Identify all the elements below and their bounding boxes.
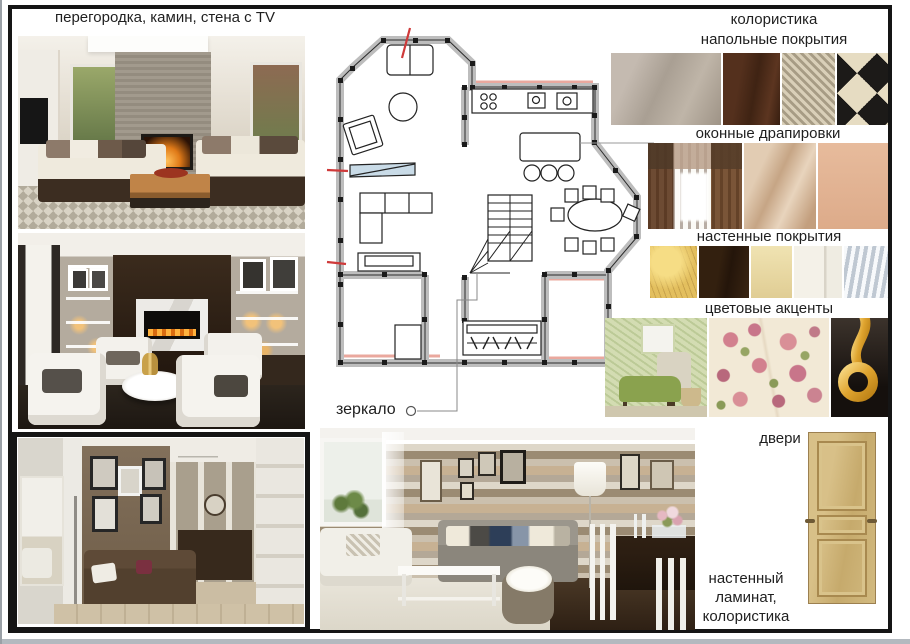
pillow-dark-right bbox=[214, 375, 248, 397]
page-title: перегородка, камин, стена с TV bbox=[30, 9, 300, 27]
plan-round-table bbox=[389, 93, 417, 121]
plan-island bbox=[520, 133, 580, 161]
flowers-vase bbox=[652, 506, 686, 538]
gold-vases bbox=[142, 353, 158, 375]
sofa-pillow-white bbox=[91, 562, 117, 583]
swatch-white-door-panel bbox=[794, 246, 842, 298]
gallery-frame-2 bbox=[458, 458, 474, 478]
door-handle-left bbox=[805, 519, 815, 523]
table-legs bbox=[402, 574, 496, 606]
swatch-peach-paint bbox=[818, 143, 888, 229]
gallery-frame-1 bbox=[420, 460, 442, 502]
curtains-label: оконные драпировки bbox=[648, 125, 888, 143]
swatch-rose-floral-fabric bbox=[709, 318, 829, 417]
mirror-callout-circle bbox=[407, 407, 416, 416]
photo-frame-bottom-left bbox=[12, 432, 310, 632]
sofa-pillow-red bbox=[136, 560, 152, 574]
green-chaise bbox=[619, 376, 681, 402]
swatch-light-taupe-wood bbox=[611, 53, 721, 125]
fireplace-flames bbox=[148, 329, 196, 336]
moodboard-page: перегородка, камин, стена с TV bbox=[0, 0, 910, 644]
door-top-panel bbox=[817, 441, 867, 511]
sofa-left-pillows bbox=[46, 140, 146, 158]
framed-art-2 bbox=[118, 466, 142, 496]
pillow-dark-left bbox=[42, 369, 82, 393]
photo-living-room-fireplace-tv bbox=[18, 36, 305, 229]
pic-right-a bbox=[240, 259, 266, 291]
fur-throw bbox=[506, 566, 552, 592]
photo-living-room-plank-wall-dining bbox=[320, 428, 695, 630]
pic-right-b bbox=[270, 257, 298, 291]
framed-art-1 bbox=[90, 456, 118, 490]
laminate-caption-3: колористика bbox=[690, 608, 802, 626]
door-image bbox=[808, 432, 876, 604]
coffee-table bbox=[130, 174, 210, 208]
swatch-shimmer-plaster bbox=[744, 143, 816, 229]
wall-coverings-label: настенные покрытия bbox=[650, 228, 888, 246]
swatch-checkerboard-tile bbox=[837, 53, 888, 125]
gold-pendant-shape bbox=[831, 318, 888, 417]
color-accents-label: цветовые акценты bbox=[650, 300, 888, 318]
swatch-woven-sisal bbox=[782, 53, 835, 125]
decor-bowl bbox=[154, 168, 188, 178]
pic-left-b bbox=[90, 269, 107, 290]
window-plant bbox=[328, 490, 372, 524]
photo-living-room-brown-wall-mirror bbox=[18, 438, 304, 624]
flooring-label-2: напольные покрытия bbox=[660, 31, 888, 49]
gallery-frame-3 bbox=[478, 452, 496, 476]
laminate-caption-1: настенный bbox=[690, 570, 802, 588]
laminate-caption-2: ламинат, bbox=[690, 589, 802, 607]
basket bbox=[681, 388, 701, 408]
floor-lamp-shade bbox=[574, 462, 606, 496]
swatch-brown-curtains-window bbox=[648, 143, 742, 229]
white-sofa-pillow bbox=[346, 534, 380, 556]
plan-closet bbox=[395, 325, 421, 359]
plan-dining-table bbox=[568, 199, 622, 231]
tv-screen bbox=[20, 98, 48, 144]
swatch-dark-brown-wood bbox=[723, 53, 780, 125]
window-glow bbox=[680, 173, 708, 221]
gallery-frame-4 bbox=[460, 482, 474, 500]
gallery-frame-5 bbox=[500, 450, 526, 484]
skylight bbox=[88, 36, 208, 52]
wood-floor bbox=[54, 604, 304, 624]
mirror-label: зеркало bbox=[336, 401, 406, 419]
bottom-edge-strip bbox=[0, 639, 910, 644]
framed-art-4 bbox=[92, 496, 118, 532]
dining-chair-2 bbox=[656, 558, 686, 630]
swatch-grey-louver bbox=[844, 246, 888, 298]
candlesticks bbox=[634, 514, 646, 538]
framed-art-5 bbox=[140, 494, 162, 524]
swatch-gold-pendant bbox=[831, 318, 888, 417]
gallery-frame-6 bbox=[620, 454, 640, 490]
swatch-cream-plaster bbox=[751, 246, 792, 298]
flooring-label-1: колористика bbox=[660, 11, 888, 29]
swatch-yellow-textured-plaster bbox=[650, 246, 697, 298]
white-unit-right bbox=[256, 438, 304, 624]
sofa-right-pillows bbox=[202, 136, 298, 154]
plan-sofa-l bbox=[360, 193, 432, 213]
floor-lamp bbox=[74, 496, 77, 608]
door-handle-right bbox=[867, 519, 877, 523]
photo-living-room-dark-accent-wall bbox=[18, 233, 305, 429]
curtain-pelmet bbox=[648, 143, 742, 169]
left-edge-strip bbox=[0, 0, 2, 644]
swatch-dark-wood-panel bbox=[699, 246, 749, 298]
framed-art-3 bbox=[142, 458, 166, 490]
swatch-green-floral-room bbox=[605, 318, 707, 417]
door-bottom-panel bbox=[817, 539, 867, 597]
pic-left-a bbox=[71, 269, 88, 290]
dining-chair-1 bbox=[590, 524, 616, 620]
grey-sofa-pillows bbox=[446, 526, 570, 546]
plan-armchair bbox=[343, 115, 383, 155]
plan-wardrobe bbox=[463, 321, 541, 355]
wall-clock bbox=[204, 494, 226, 516]
pillow-grey-a bbox=[106, 351, 140, 365]
green-room-floor bbox=[605, 406, 707, 417]
door-mid-rail bbox=[817, 515, 867, 535]
mirror-reflection-table bbox=[22, 548, 52, 578]
green-room-window bbox=[641, 324, 675, 354]
gallery-frame-7 bbox=[650, 460, 674, 490]
